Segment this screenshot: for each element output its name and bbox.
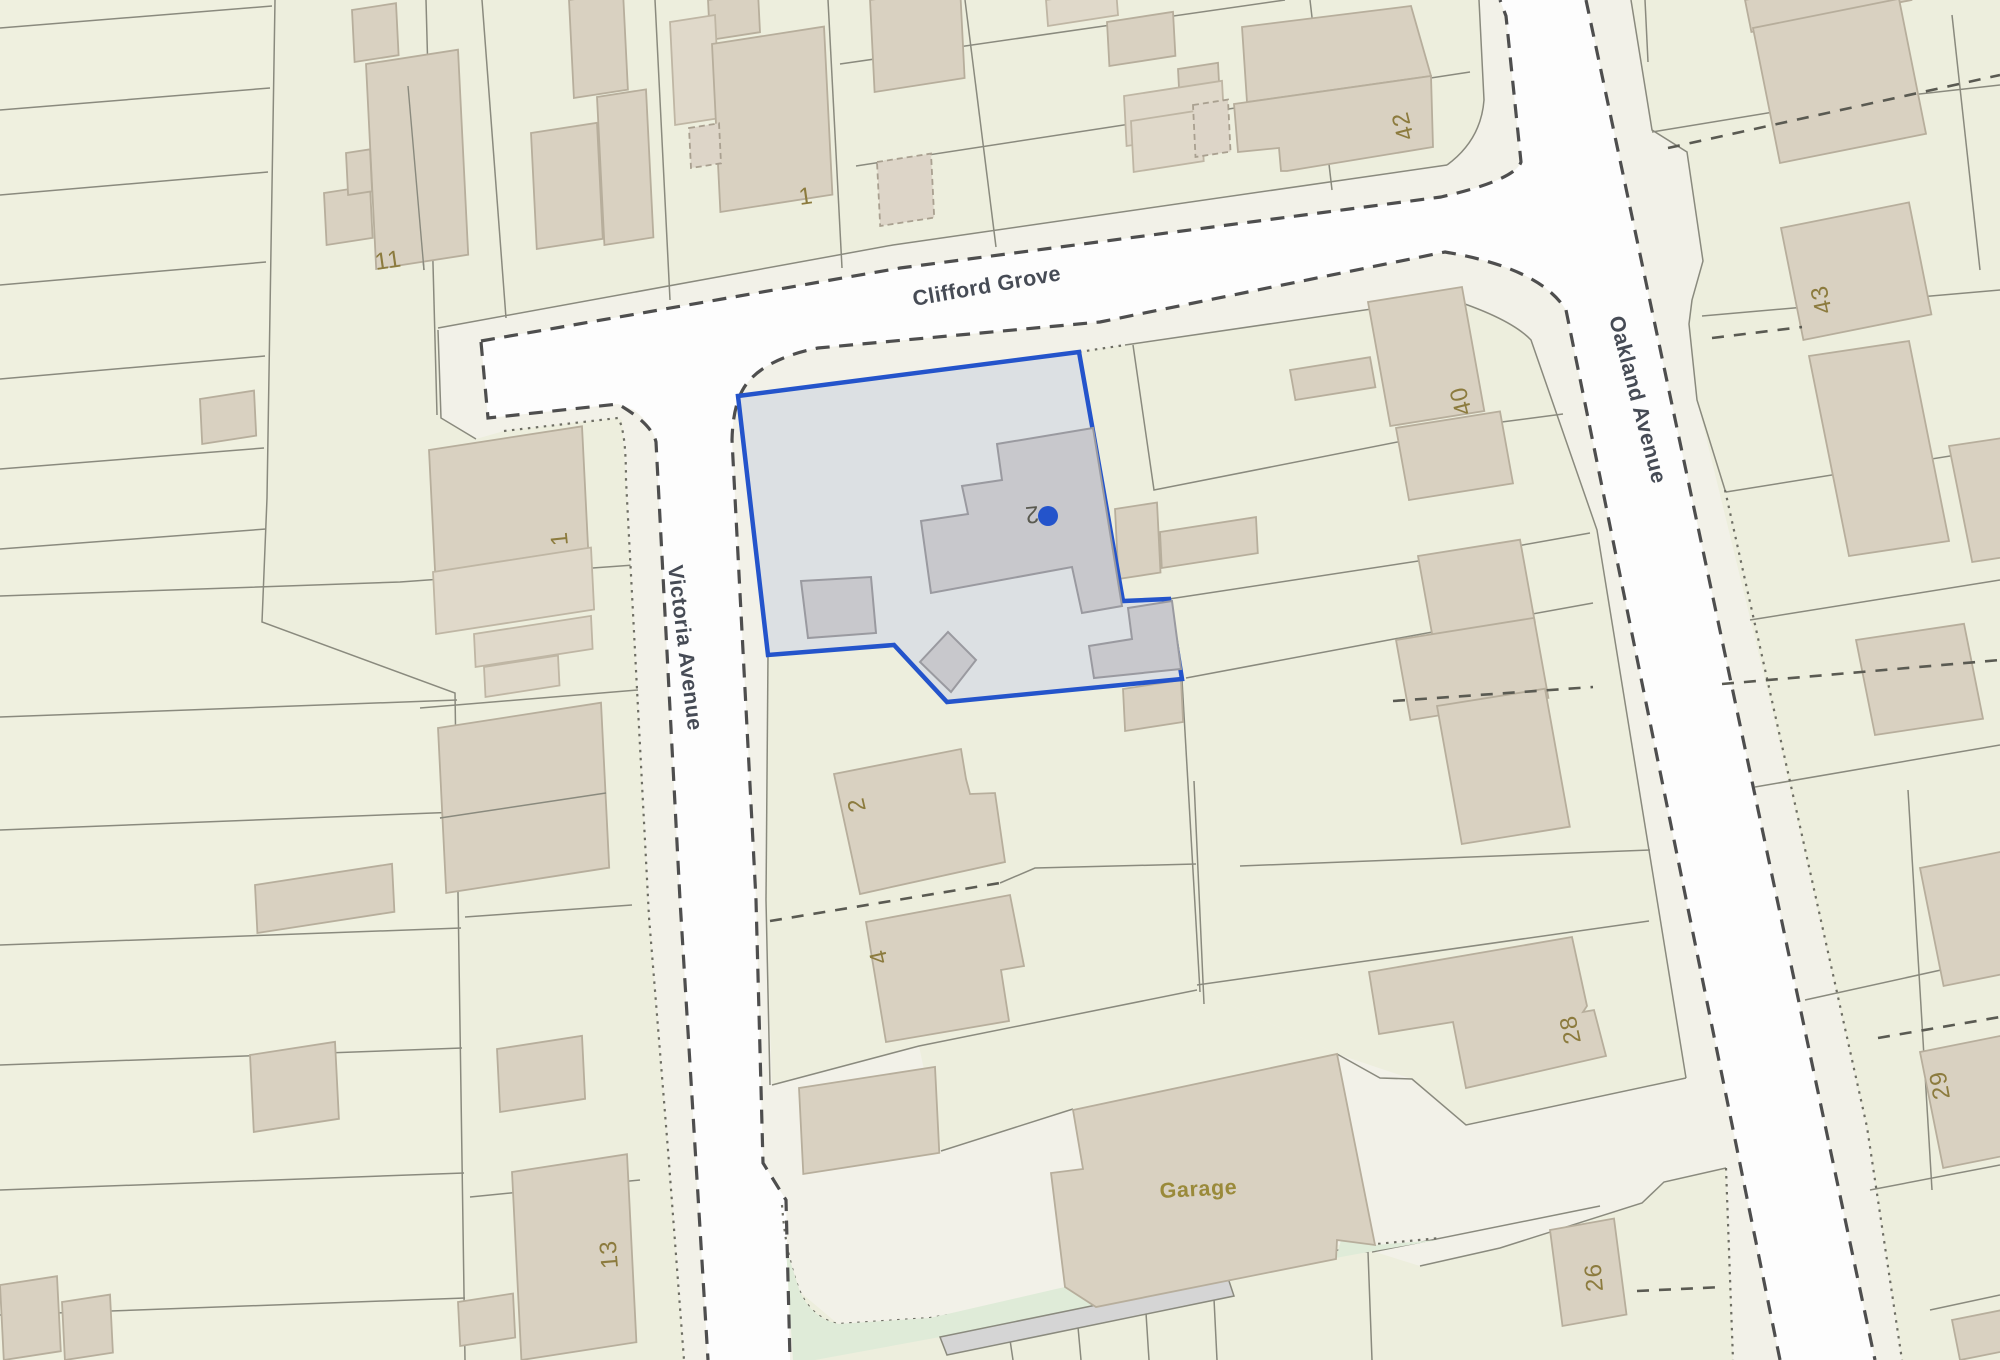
svg-text:26: 26	[1580, 1262, 1609, 1293]
svg-text:11: 11	[373, 245, 403, 275]
svg-text:13: 13	[595, 1239, 624, 1270]
svg-text:1: 1	[546, 530, 574, 547]
svg-text:2: 2	[1023, 500, 1040, 528]
svg-text:Garage: Garage	[1159, 1175, 1238, 1203]
svg-text:29: 29	[1924, 1069, 1956, 1102]
